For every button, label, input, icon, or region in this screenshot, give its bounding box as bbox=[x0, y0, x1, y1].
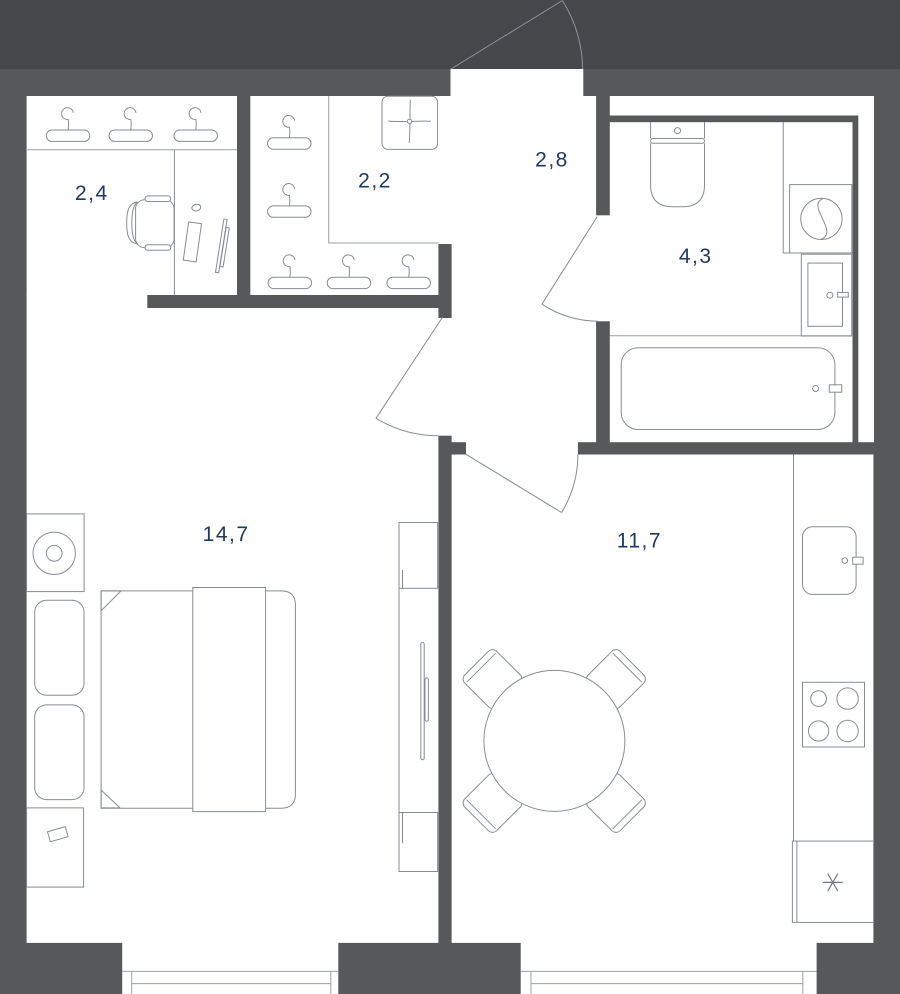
svg-text:2,4: 2,4 bbox=[75, 182, 109, 205]
svg-text:11,7: 11,7 bbox=[617, 530, 662, 553]
svg-text:4,3: 4,3 bbox=[679, 245, 713, 268]
svg-text:14,7: 14,7 bbox=[203, 523, 250, 546]
svg-text:2,8: 2,8 bbox=[535, 149, 569, 172]
svg-text:2,2: 2,2 bbox=[358, 170, 392, 193]
